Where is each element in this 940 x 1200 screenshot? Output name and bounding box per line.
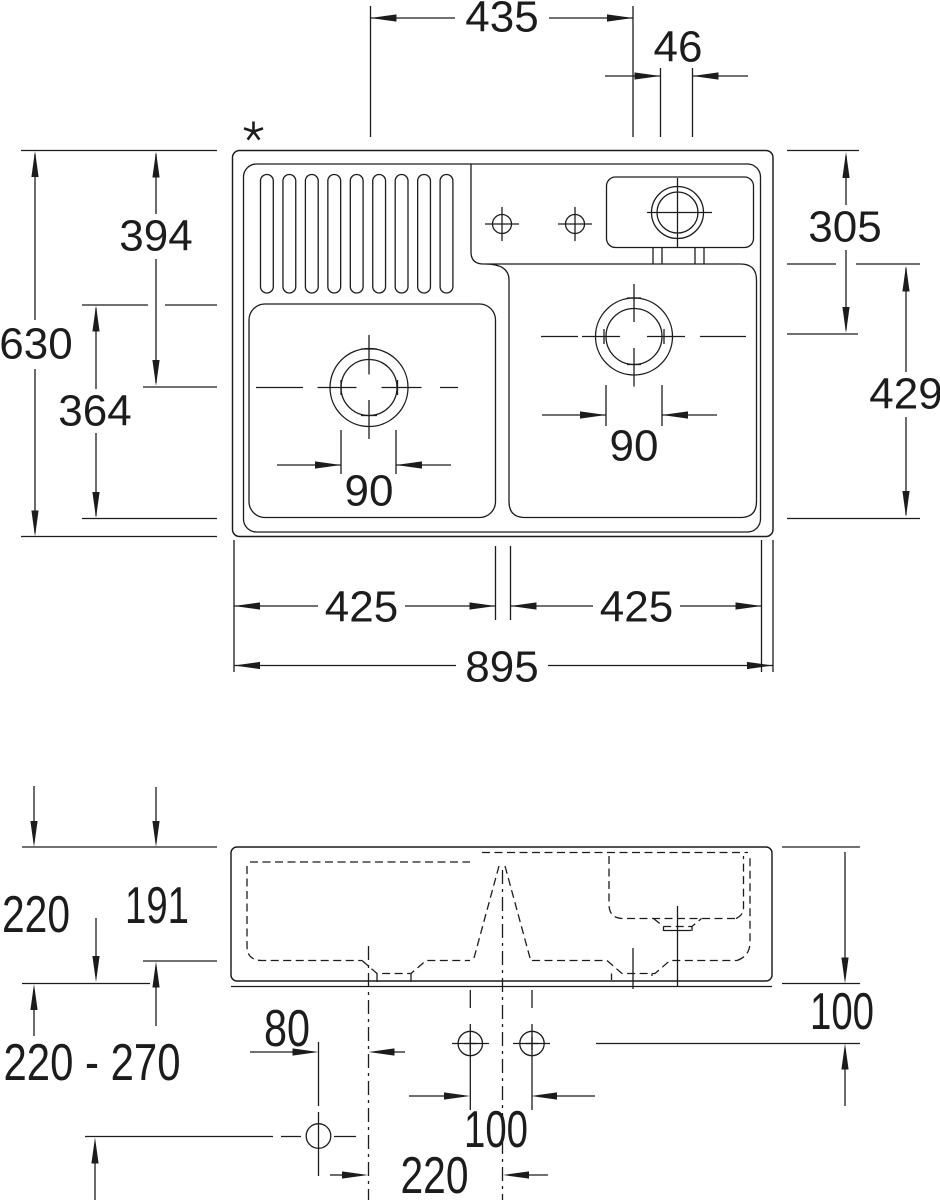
svg-text:630: 630 — [0, 320, 73, 369]
svg-text:220: 220 — [2, 886, 70, 944]
svg-text:220: 220 — [401, 1147, 469, 1200]
svg-text:46: 46 — [654, 23, 703, 72]
svg-text:425: 425 — [600, 583, 673, 632]
svg-text:191: 191 — [125, 877, 189, 935]
svg-text:364: 364 — [58, 387, 131, 436]
svg-text:429: 429 — [869, 370, 940, 419]
svg-text:100: 100 — [810, 983, 874, 1041]
svg-text:895: 895 — [465, 643, 538, 692]
svg-text:90: 90 — [610, 422, 659, 471]
svg-text:394: 394 — [119, 212, 192, 261]
svg-text:305: 305 — [808, 203, 881, 252]
svg-text:425: 425 — [325, 583, 398, 632]
svg-text:220 - 270: 220 - 270 — [4, 1034, 181, 1092]
svg-text:80: 80 — [264, 1000, 310, 1058]
svg-text:90: 90 — [345, 467, 394, 516]
svg-text:100: 100 — [464, 1101, 528, 1159]
svg-text:435: 435 — [465, 0, 538, 42]
